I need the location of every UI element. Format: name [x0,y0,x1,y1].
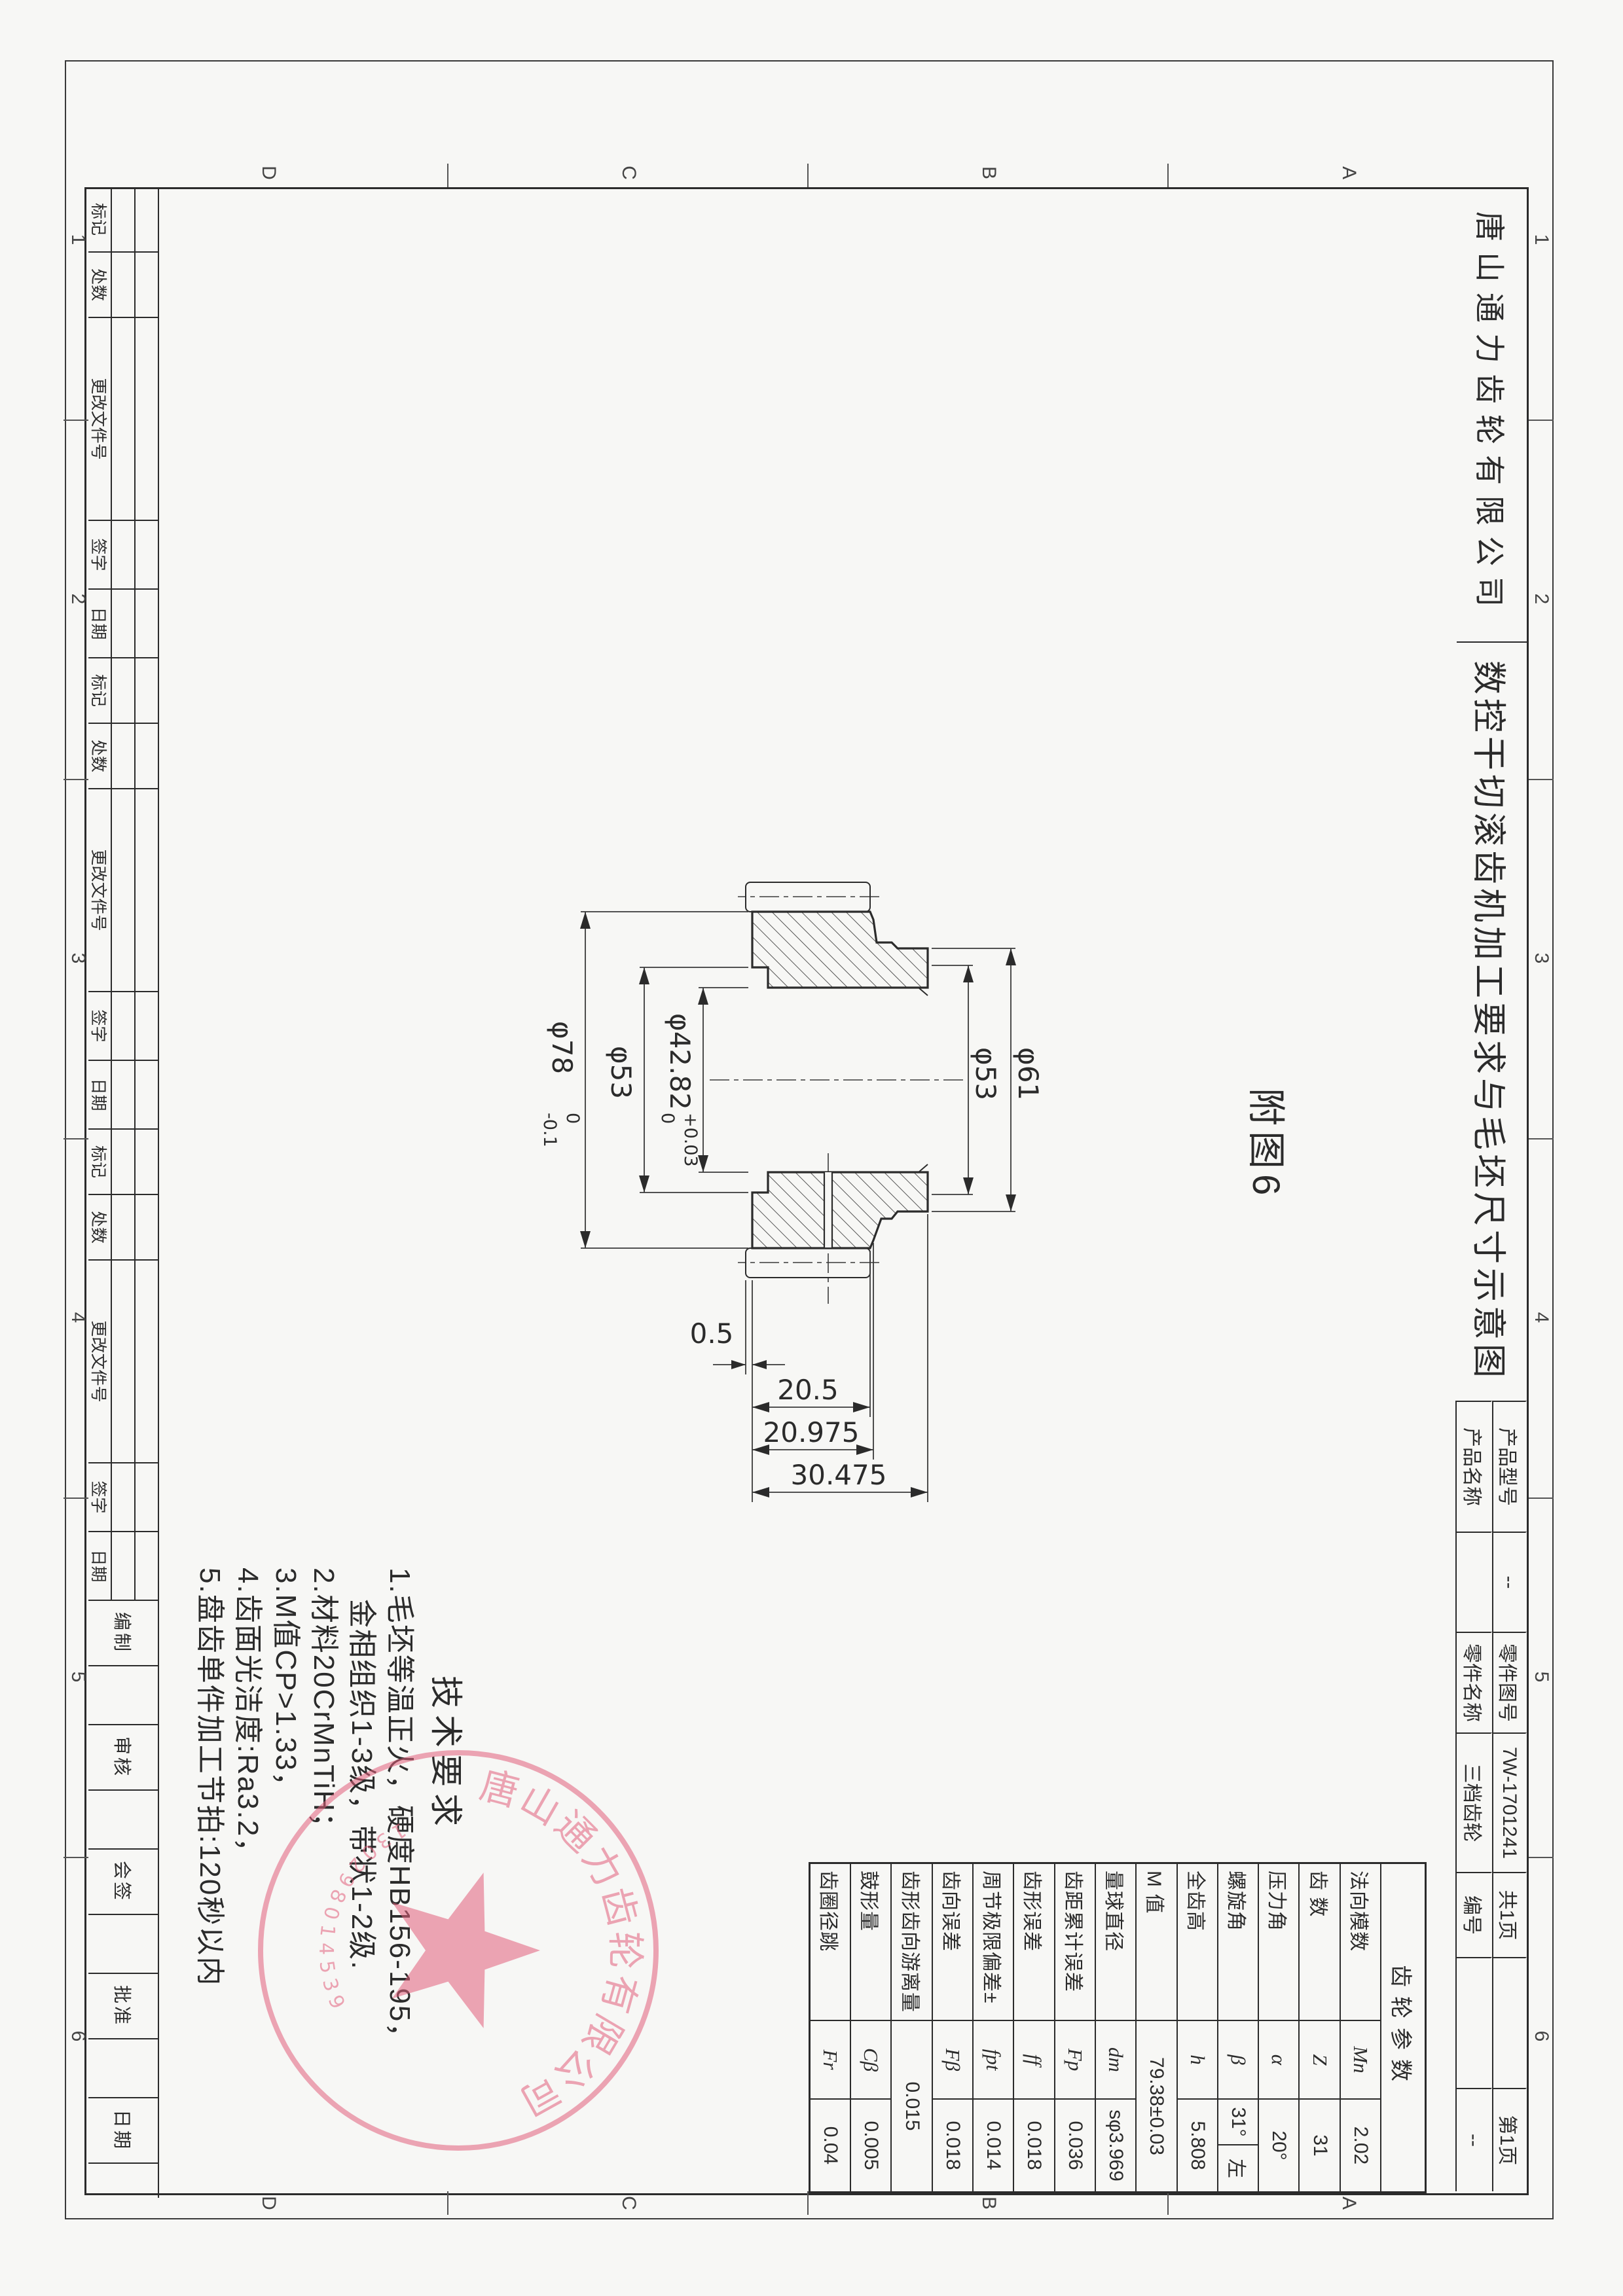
scanned-engineering-drawing: { "title_bar": { "company": "唐山通力齿轮有限公司"… [0,0,1623,2296]
stamp-star-icon [392,1873,540,2028]
dim-web: φ53 [605,1046,637,1099]
company-stamp: 唐山通力齿轮有限公司 130298014539 [261,1753,656,2148]
dim-gap: 0.5 [690,1318,734,1350]
dim-rim-width: 20.975 [763,1416,860,1448]
gear-section-drawing: φ42.82 +0.03 0 φ53 φ78 0 -0.1 φ53 φ61 0.… [0,0,1623,2296]
dim-od-tol-dn: -0.1 [539,1113,560,1147]
dim-step: φ53 [970,1047,1002,1100]
dim-bore-tol-dn: 0 [657,1113,678,1124]
dim-od: φ78 [546,1021,578,1074]
dim-teeth-width: 20.5 [777,1374,839,1406]
dim-od-tol-up: 0 [562,1113,583,1124]
dim-bore-tol-up: +0.03 [680,1113,701,1167]
svg-text:130298014539: 130298014539 [314,1818,410,2018]
dim-total-width: 30.475 [791,1459,887,1491]
dim-bore: φ42.82 [664,1013,696,1110]
dim-flange: φ61 [1012,1047,1044,1100]
drawing-sheet: 1 2 3 4 5 6 1 2 3 4 5 6 A B C D A B C D … [0,0,1623,2296]
radial-hole [824,1172,832,1248]
